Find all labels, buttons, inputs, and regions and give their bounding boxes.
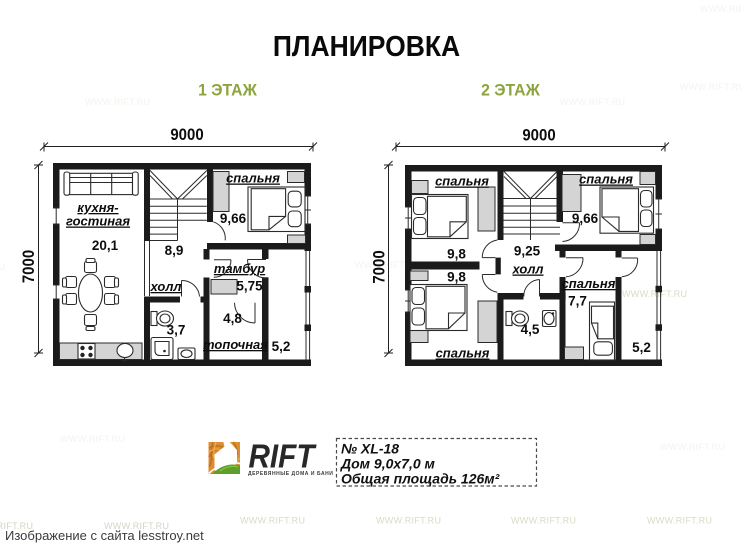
svg-text:9000: 9000 [170,126,203,144]
svg-text:спальня: спальня [562,276,616,291]
svg-text:9,8: 9,8 [447,247,466,262]
svg-text:WWW.RIFT.RU: WWW.RIFT.RU [240,516,305,526]
svg-text:8,9: 8,9 [165,243,184,258]
svg-text:WWW.RIFT.RU: WWW.RIFT.RU [85,97,150,107]
svg-text:ДЕРЕВЯННЫЕ ДОМА И БАНИ: ДЕРЕВЯННЫЕ ДОМА И БАНИ [248,471,333,477]
svg-text:Общая площадь 126м²: Общая площадь 126м² [341,471,500,487]
svg-text:9,66: 9,66 [220,211,247,226]
svg-text:WWW.RIFT.RU: WWW.RIFT.RU [622,289,687,299]
svg-text:5,2: 5,2 [632,340,651,355]
svg-text:спальня: спальня [436,346,490,361]
svg-text:спальня: спальня [579,172,633,187]
svg-text:тамбур: тамбур [214,261,265,276]
svg-text:WWW.RIFT.RU: WWW.RIFT.RU [60,434,125,444]
svg-text:№ XL-18: № XL-18 [341,441,399,457]
svg-text:гостиная: гостиная [66,214,130,229]
svg-text:WWW.RIFT.RU: WWW.RIFT.RU [660,442,725,452]
svg-text:1 ЭТАЖ: 1 ЭТАЖ [198,81,257,100]
svg-text:4,8: 4,8 [223,311,242,326]
svg-text:9000: 9000 [522,127,555,145]
svg-text:5,2: 5,2 [272,339,291,354]
svg-text:WWW.RIFT.RU: WWW.RIFT.RU [0,262,5,272]
svg-text:3,7: 3,7 [167,323,186,338]
svg-text:7000: 7000 [371,250,389,283]
svg-text:RIFT: RIFT [249,438,318,475]
svg-text:WWW.RIFT.RU: WWW.RIFT.RU [680,82,742,92]
svg-text:спальня: спальня [435,174,489,189]
svg-text:холл: холл [511,262,543,277]
svg-text:7000: 7000 [20,250,38,283]
svg-text:5,75: 5,75 [236,279,263,294]
svg-text:9,25: 9,25 [514,244,541,259]
svg-text:4,5: 4,5 [521,322,540,337]
svg-text:WWW.RIFT.RU: WWW.RIFT.RU [560,97,625,107]
svg-text:2 ЭТАЖ: 2 ЭТАЖ [481,81,540,100]
svg-text:20,1: 20,1 [92,238,119,253]
svg-text:спальня: спальня [226,171,280,186]
svg-text:Дом 9,0х7,0 м: Дом 9,0х7,0 м [340,456,436,472]
svg-text:9,8: 9,8 [447,270,466,285]
svg-text:топочная: топочная [203,337,268,352]
svg-text:Изображение с сайта lesstroy.n: Изображение с сайта lesstroy.net [5,528,204,543]
svg-text:WWW.RIFT.RU: WWW.RIFT.RU [700,4,742,14]
svg-text:WWW.RIFT.RU: WWW.RIFT.RU [647,516,712,526]
svg-text:7,7: 7,7 [568,294,587,309]
svg-text:WWW.RIFT.RU: WWW.RIFT.RU [511,516,576,526]
svg-text:холл: холл [149,279,181,294]
svg-text:WWW.RIFT.RU: WWW.RIFT.RU [376,516,441,526]
svg-text:9,66: 9,66 [572,211,599,226]
svg-text:ПЛАНИРОВКА: ПЛАНИРОВКА [273,30,460,62]
